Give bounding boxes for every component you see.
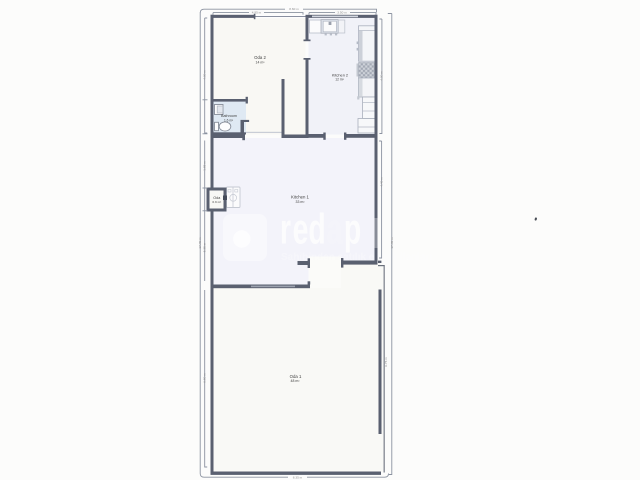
svg-text:17.45 m: 17.45 m	[390, 237, 394, 249]
svg-text:a: a	[327, 204, 343, 252]
svg-text:4.40 m: 4.40 m	[379, 177, 383, 187]
svg-text:0.9 m²: 0.9 m²	[212, 200, 221, 204]
svg-text:12 m²: 12 m²	[335, 78, 344, 82]
svg-text:4.30 m: 4.30 m	[380, 71, 384, 81]
svg-text:r: r	[280, 204, 291, 252]
svg-text:48 m²: 48 m²	[291, 379, 301, 383]
svg-text:4.95 m: 4.95 m	[252, 10, 262, 14]
svg-text:3.50 m: 3.50 m	[337, 10, 347, 14]
svg-text:14 m²: 14 m²	[256, 60, 266, 64]
svg-text:Oda 1: Oda 1	[290, 374, 302, 379]
svg-text:p: p	[344, 204, 361, 252]
svg-text:6.75 m: 6.75 m	[384, 357, 388, 367]
svg-text:1.85 m: 1.85 m	[203, 161, 207, 171]
svg-text:d: d	[308, 204, 325, 252]
svg-text:Oda 2: Oda 2	[254, 55, 266, 60]
svg-text:e: e	[293, 204, 309, 252]
svg-text:17.45 m: 17.45 m	[198, 237, 202, 249]
svg-text:6.80 m: 6.80 m	[203, 373, 207, 383]
svg-text:Kitchen 1: Kitchen 1	[291, 195, 310, 200]
svg-text:4.30 m: 4.30 m	[203, 70, 207, 80]
svg-text:8.35 m: 8.35 m	[293, 476, 303, 480]
svg-text:8.60 m: 8.60 m	[289, 7, 299, 11]
svg-text:33 m²: 33 m²	[296, 200, 306, 204]
svg-text:1.6 m²: 1.6 m²	[224, 119, 233, 123]
svg-text:5.35 m: 5.35 m	[203, 242, 207, 252]
